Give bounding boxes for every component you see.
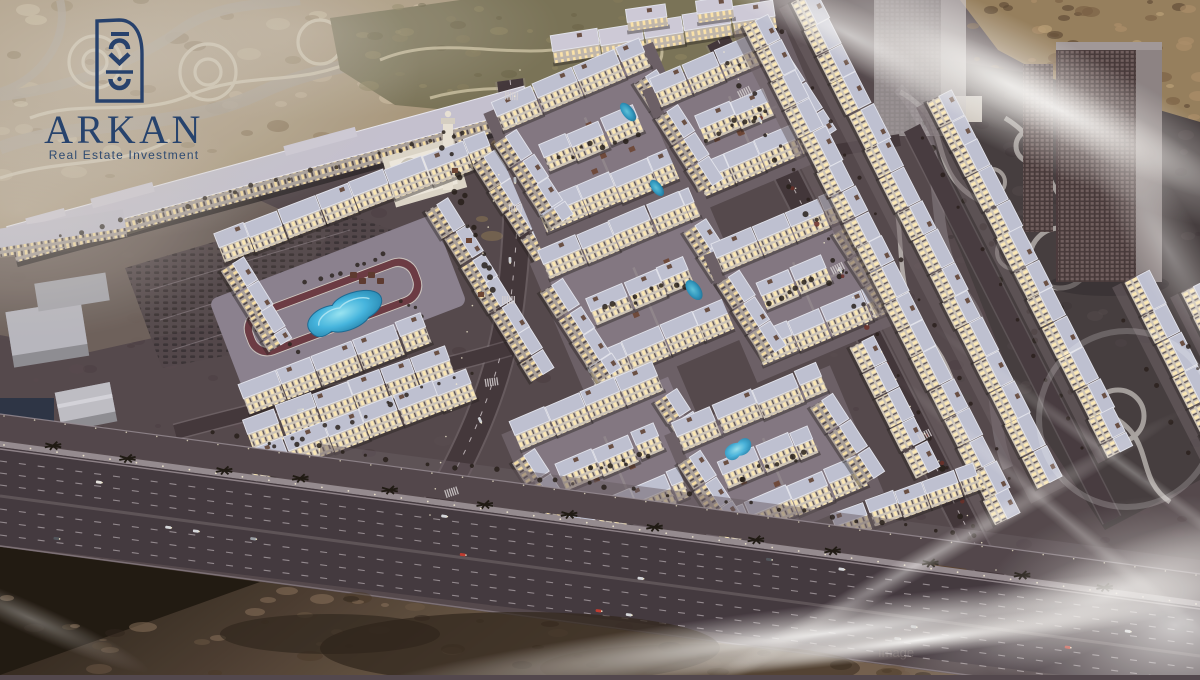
svg-text:Image: Image [878,645,914,660]
